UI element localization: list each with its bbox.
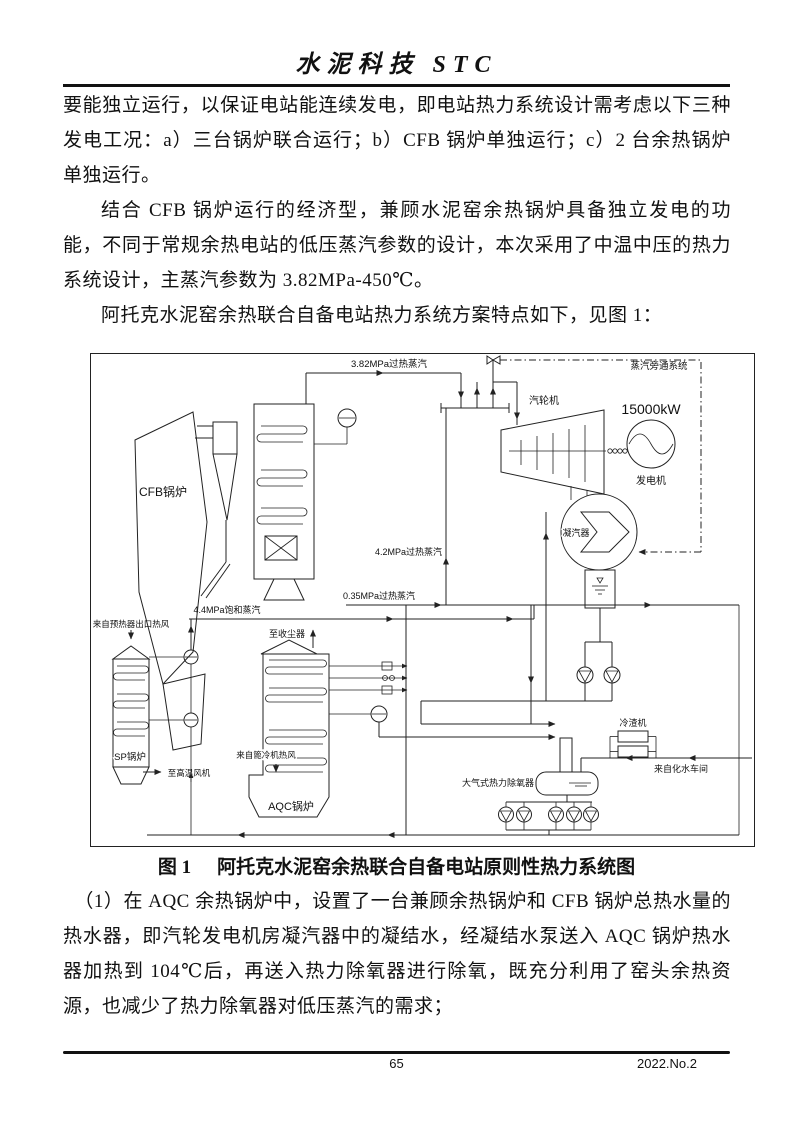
heating-coil <box>266 660 327 674</box>
deaerator-label: 大气式热力除氧器 <box>462 777 534 788</box>
cfb-boiler: CFB锅炉 <box>135 412 237 750</box>
steam-bypass-line: 蒸汽旁通系统 <box>487 356 701 552</box>
from-grate-cooler-label: 来自篦冷机热风 <box>236 750 296 760</box>
feed-pump <box>517 807 532 822</box>
condensate-pump <box>604 667 620 683</box>
paragraph-3: 阿托克水泥窑余热联合自备电站热力系统方案特点如下，见图 1： <box>63 298 731 333</box>
figure-caption-text: 阿托克水泥窑余热联合自备电站原则性热力系统图 <box>217 857 635 878</box>
paragraph-4: （1）在 AQC 余热锅炉中，设置了一台兼顾余热锅炉和 CFB 锅炉总热水量的热… <box>63 884 731 1024</box>
generator: 15000kW 发电机 <box>621 401 681 487</box>
slag-cooler-label: 冷渣机 <box>619 717 646 728</box>
to-ht-fan-label: 至高温风机 <box>168 768 211 778</box>
steam-turbine: 汽轮机 <box>501 394 627 494</box>
heating-coil <box>114 722 149 736</box>
turbine-label: 汽轮机 <box>529 394 559 407</box>
sp-boiler-label: SP锅炉 <box>114 751 146 763</box>
heating-coil <box>266 688 327 702</box>
feed-pump <box>584 807 599 822</box>
condensate-pump <box>577 667 593 683</box>
heating-coil <box>257 508 307 524</box>
from-water-treatment-label: 来自化水车间 <box>654 763 708 774</box>
heating-coil <box>257 426 307 442</box>
heating-coil <box>257 470 307 486</box>
deaerator-column <box>560 738 572 772</box>
cfb-boiler-label: CFB锅炉 <box>139 484 187 499</box>
generator-power-label: 15000kW <box>621 401 681 417</box>
main-steam-line: 3.82MPa过热蒸汽 <box>306 358 517 425</box>
steam-4-2-label: 4.2MPa过热蒸汽 <box>375 546 442 557</box>
cyclone <box>213 422 237 454</box>
feed-pump <box>567 807 582 822</box>
paragraph-2: 结合 CFB 锅炉运行的经济型，兼顾水泥窑余热锅炉具备独立发电的功能，不同于常规… <box>63 193 731 298</box>
deaerator-tank <box>536 772 598 795</box>
heating-coil <box>114 694 149 708</box>
feed-pump <box>549 807 564 822</box>
main-steam-label: 3.82MPa过热蒸汽 <box>351 358 428 370</box>
footer-rule <box>63 1051 730 1054</box>
page: 水泥科技 STC 要能独立运行，以保证电站能连续发电，即电站热力系统设计需考虑以… <box>0 0 793 1122</box>
condenser-label: 凝汽器 <box>562 527 589 538</box>
from-preheater-label: 来自预热器出口热风 <box>93 619 170 629</box>
to-dust-collector-label: 至收尘器 <box>269 628 305 639</box>
figure-caption: 图 1阿托克水泥窑余热联合自备电站原则性热力系统图 <box>63 856 730 880</box>
thermal-system-diagram: CFB锅炉 <box>89 352 756 848</box>
generator-label: 发电机 <box>636 474 666 487</box>
journal-title: 水泥科技 STC <box>0 44 793 79</box>
body-text-top: 要能独立运行，以保证电站能连续发电，即电站热力系统设计需考虑以下三种发电工况：a… <box>63 88 731 350</box>
heating-coil <box>114 666 149 680</box>
figure-caption-label: 图 1 <box>158 857 191 878</box>
bypass-label: 蒸汽旁通系统 <box>630 360 688 372</box>
aqc-boiler: AQC锅炉 至收尘器 来自篦冷机热风 <box>236 628 407 817</box>
aqc-boiler-label: AQC锅炉 <box>268 800 314 813</box>
heating-coil <box>266 730 327 744</box>
issue-label: 2022.No.2 <box>637 1056 697 1071</box>
header-rule <box>63 84 730 87</box>
feed-pump <box>499 807 514 822</box>
deaerator: 大气式热力除氧器 <box>379 724 599 835</box>
slag-cooler: 冷渣机 来自化水车间 <box>581 605 752 835</box>
paragraph-1: 要能独立运行，以保证电站能连续发电，即电站热力系统设计需考虑以下三种发电工况：a… <box>63 88 731 193</box>
steam-4-4-label: 4.4MPa饱和蒸汽 <box>193 604 260 615</box>
steam-0-35-label: 0.35MPa过热蒸汽 <box>343 590 415 601</box>
body-text-bottom: （1）在 AQC 余热锅炉中，设置了一台兼顾余热锅炉和 CFB 锅炉总热水量的热… <box>63 884 731 1034</box>
heating-coil <box>266 758 327 772</box>
hotwell <box>585 570 615 608</box>
cfb-backpass <box>254 404 356 600</box>
figure-diagram: CFB锅炉 <box>89 352 756 848</box>
